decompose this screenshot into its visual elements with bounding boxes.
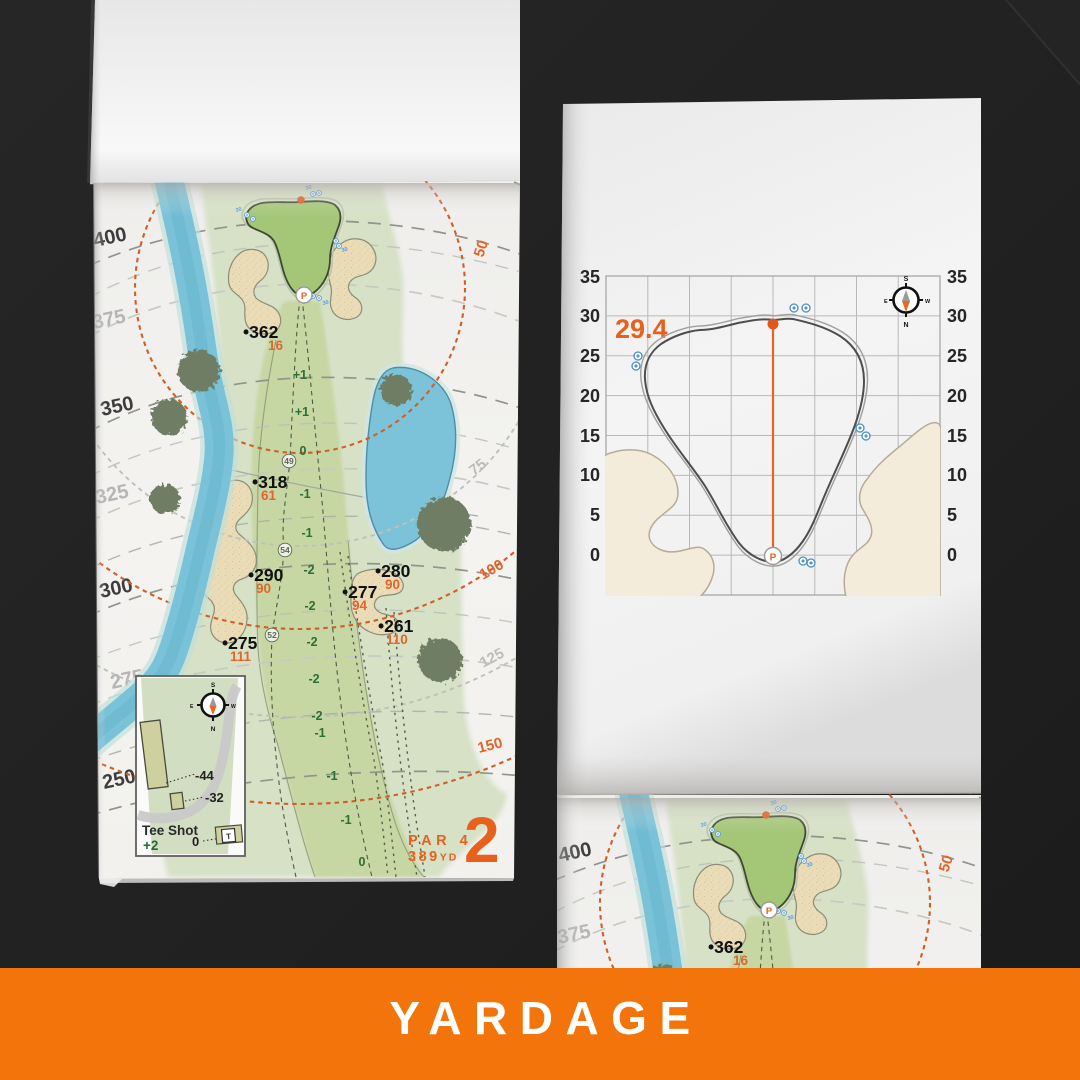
svg-text:35: 35 — [580, 267, 600, 287]
svg-text:35: 35 — [947, 267, 967, 287]
svg-text:25: 25 — [947, 346, 967, 366]
svg-text:S: S — [904, 276, 909, 283]
svg-text:P: P — [770, 553, 777, 564]
svg-text:E: E — [884, 299, 888, 305]
svg-text:10: 10 — [580, 465, 600, 485]
svg-text:30: 30 — [947, 306, 967, 326]
svg-text:0: 0 — [590, 545, 600, 565]
svg-text:30: 30 — [580, 306, 600, 326]
svg-text:20: 20 — [580, 386, 600, 406]
svg-text:N: N — [903, 322, 908, 329]
svg-text:5: 5 — [590, 505, 600, 525]
svg-text:15: 15 — [947, 426, 967, 446]
svg-text:YARDAGE: YARDAGE — [389, 992, 702, 1044]
svg-text:W: W — [925, 299, 931, 305]
svg-text:10: 10 — [947, 465, 967, 485]
svg-text:5: 5 — [947, 505, 957, 525]
svg-text:20: 20 — [947, 386, 967, 406]
svg-text:25: 25 — [580, 346, 600, 366]
svg-text:15: 15 — [580, 426, 600, 446]
svg-text:0: 0 — [947, 545, 957, 565]
